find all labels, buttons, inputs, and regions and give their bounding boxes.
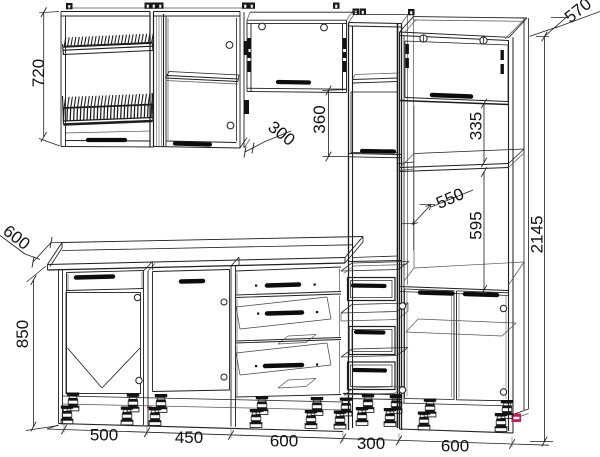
svg-text:450: 450	[175, 428, 203, 447]
svg-text:2145: 2145	[528, 216, 547, 254]
svg-text:300: 300	[357, 434, 385, 453]
svg-text:850: 850	[13, 320, 32, 348]
svg-text:500: 500	[90, 426, 118, 445]
svg-text:360: 360	[310, 105, 329, 133]
svg-text:720: 720	[29, 59, 48, 87]
svg-text:600: 600	[441, 437, 469, 456]
svg-text:595: 595	[467, 211, 486, 239]
svg-text:335: 335	[467, 112, 486, 140]
svg-text:600: 600	[270, 432, 298, 451]
